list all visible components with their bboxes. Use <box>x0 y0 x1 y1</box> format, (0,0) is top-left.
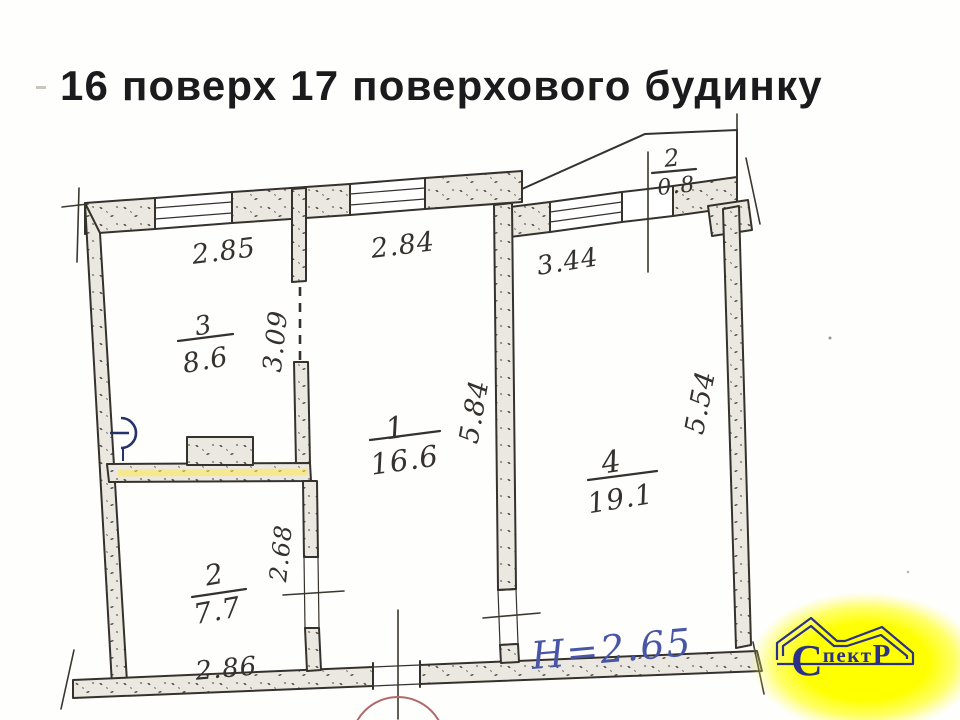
company-logo: СпектР <box>750 592 960 720</box>
balcony-area: 0.8 <box>656 172 696 201</box>
scanned-floor-plan-page: 16 поверх 17 поверхового будинку <box>0 0 960 720</box>
dimension-labels: 2.85 2.84 3.44 2.86 3.09 5.84 5.54 2.68 … <box>189 226 722 686</box>
room1-number: 1 <box>383 410 408 447</box>
room1-area: 16.6 <box>368 438 441 481</box>
dim-room1-depth: 5.84 <box>454 377 496 446</box>
dim-room2-width: 2.86 <box>193 651 258 686</box>
dim-room3-depth: 3.09 <box>258 309 294 374</box>
room3-area: 8.6 <box>180 341 231 380</box>
room2-number: 2 <box>201 557 226 593</box>
scan-specks <box>36 86 909 573</box>
room4-area: 19.1 <box>585 477 656 520</box>
dim-room4-depth: 5.54 <box>679 368 722 437</box>
dim-window-right: 3.44 <box>535 242 601 281</box>
dim-window-middle: 2.84 <box>368 226 436 265</box>
balcony-number: 2 <box>662 143 682 173</box>
yellow-marker-line <box>118 472 308 473</box>
room2-area: 7.7 <box>191 590 244 631</box>
floor-plan-drawing: 1 16.6 2 7.7 3 8.6 4 19.1 2 0.8 2.85 2.8… <box>0 0 960 720</box>
dim-room2-inner: 2.68 <box>264 523 298 584</box>
dim-window-left: 2.85 <box>189 232 257 271</box>
